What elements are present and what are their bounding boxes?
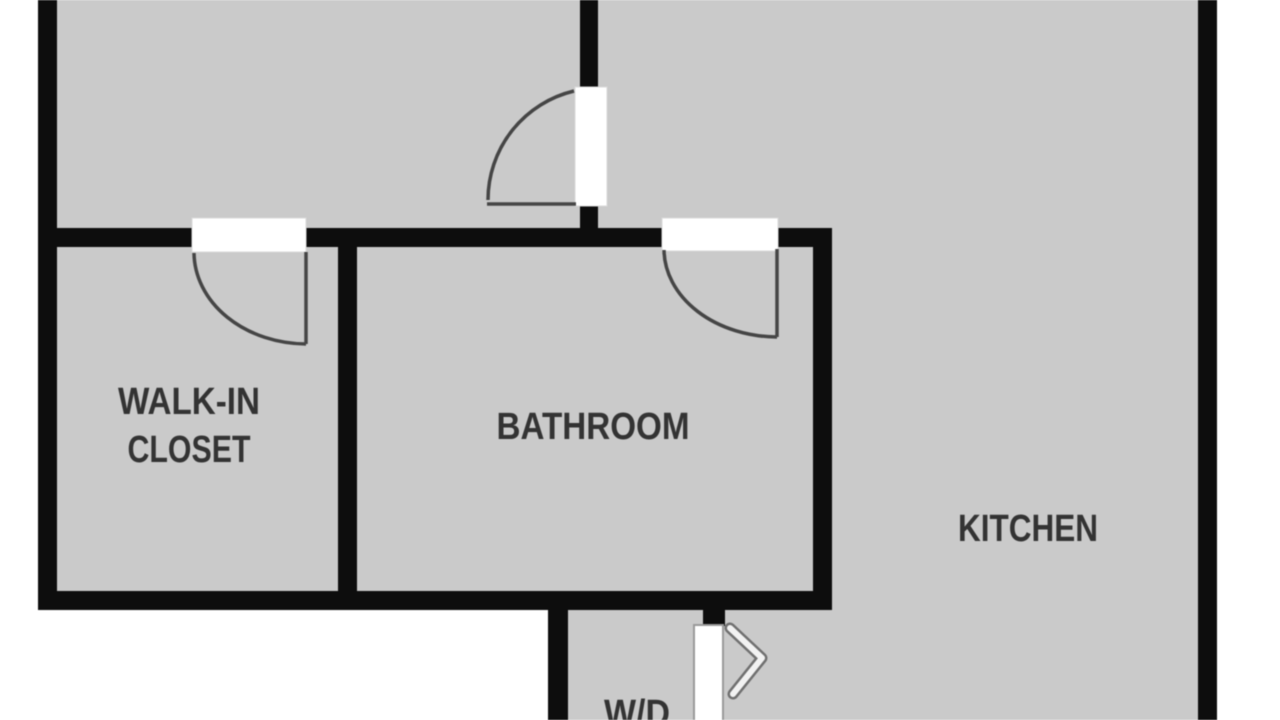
- door-leaf-closet: [192, 218, 306, 252]
- wall-exterior-left: [38, 0, 57, 610]
- room-label-laundry: W/D: [604, 693, 670, 720]
- room-label-walk-in-closet-line2: CLOSET: [128, 429, 251, 471]
- door-leaf-laundry: [694, 625, 723, 720]
- floor-plan-drawing: WALK-IN CLOSET BATHROOM KITCHEN W/D: [0, 0, 1280, 720]
- wall-bottom: [38, 591, 832, 610]
- room-label-kitchen: KITCHEN: [958, 508, 1098, 550]
- wall-laundry-left: [548, 610, 568, 720]
- room-label-bathroom: BATHROOM: [497, 406, 690, 448]
- door-leaf-bathroom: [662, 218, 778, 251]
- door-leaf-hallway: [575, 87, 607, 206]
- floor-plan: WALK-IN CLOSET BATHROOM KITCHEN W/D: [0, 0, 1280, 720]
- wall-laundry-stub: [703, 610, 725, 626]
- wall-closet-bathroom-divider: [338, 247, 357, 591]
- wall-bathroom-kitchen-divider: [813, 228, 832, 610]
- room-label-walk-in-closet-line1: WALK-IN: [118, 381, 260, 423]
- wall-exterior-right: [1198, 0, 1217, 720]
